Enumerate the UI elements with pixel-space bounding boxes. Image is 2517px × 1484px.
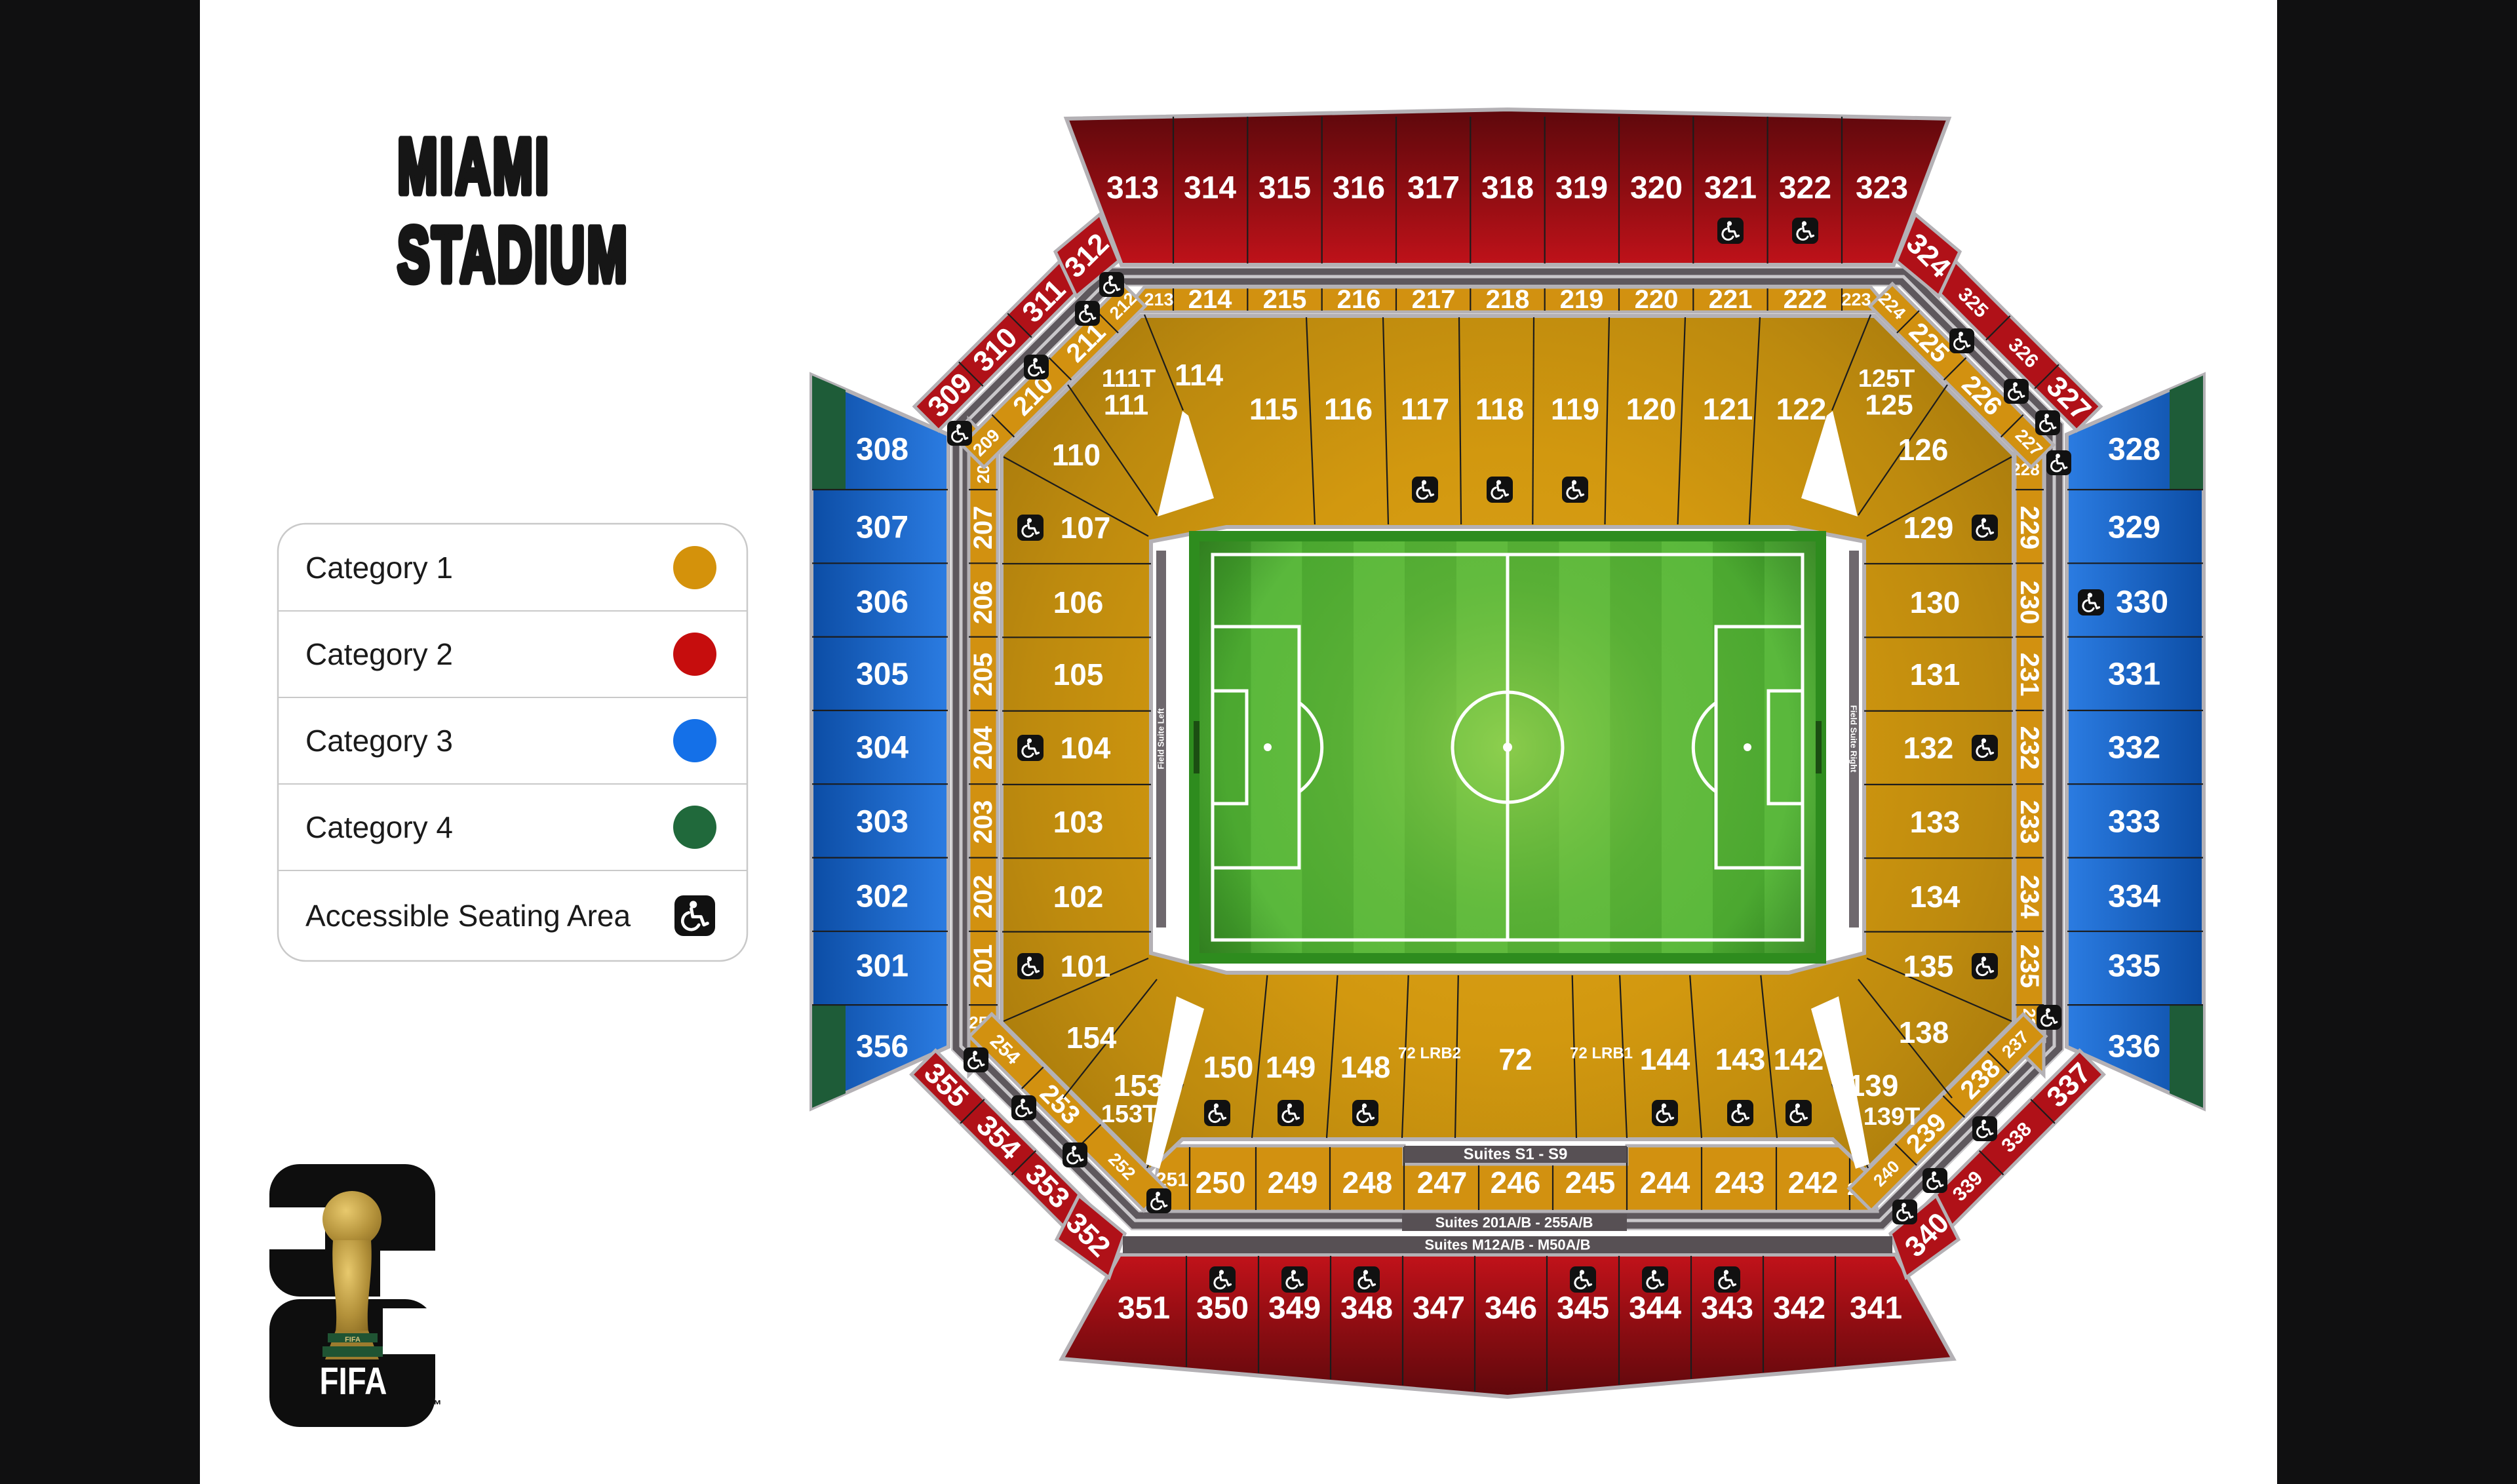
svg-text:118: 118 <box>1475 392 1524 426</box>
svg-text:202: 202 <box>969 875 998 919</box>
svg-text:322: 322 <box>1779 171 1831 206</box>
svg-text:232: 232 <box>2015 726 2044 770</box>
svg-text:323: 323 <box>1856 171 1908 206</box>
svg-text:201: 201 <box>969 945 998 988</box>
svg-text:Category 2: Category 2 <box>305 637 453 671</box>
svg-text:131: 131 <box>1910 657 1961 692</box>
svg-text:331: 331 <box>2108 657 2160 692</box>
svg-text:335: 335 <box>2108 949 2160 984</box>
svg-text:121: 121 <box>1703 392 1753 426</box>
svg-text:129: 129 <box>1903 511 1954 545</box>
svg-text:101: 101 <box>1061 949 1111 983</box>
svg-text:315: 315 <box>1258 171 1311 206</box>
svg-text:320: 320 <box>1630 171 1683 206</box>
svg-text:230: 230 <box>2015 581 2044 625</box>
svg-text:103: 103 <box>1053 805 1104 839</box>
svg-text:301: 301 <box>856 949 908 984</box>
svg-text:133: 133 <box>1910 805 1961 839</box>
svg-text:™: ™ <box>429 1398 442 1413</box>
svg-text:110: 110 <box>1052 438 1101 472</box>
svg-text:332: 332 <box>2108 731 2160 766</box>
svg-text:130: 130 <box>1910 585 1961 619</box>
svg-text:244: 244 <box>1640 1165 1690 1200</box>
svg-text:142: 142 <box>1774 1042 1824 1076</box>
svg-text:349: 349 <box>1268 1291 1321 1326</box>
svg-text:138: 138 <box>1899 1015 1949 1049</box>
svg-text:328: 328 <box>2108 433 2160 467</box>
svg-text:154: 154 <box>1066 1021 1117 1055</box>
svg-text:Suites 201A/B - 255A/B: Suites 201A/B - 255A/B <box>1435 1215 1593 1231</box>
svg-text:347: 347 <box>1413 1291 1465 1326</box>
svg-text:FIFA: FIFA <box>320 1361 387 1403</box>
svg-text:245: 245 <box>1565 1165 1616 1200</box>
svg-text:302: 302 <box>856 880 908 914</box>
svg-text:316: 316 <box>1333 171 1385 206</box>
svg-text:304: 304 <box>856 731 908 766</box>
svg-text:106: 106 <box>1053 585 1104 619</box>
svg-text:207: 207 <box>969 506 998 550</box>
svg-text:333: 333 <box>2108 805 2160 840</box>
svg-text:303: 303 <box>856 805 908 840</box>
svg-text:107: 107 <box>1061 511 1111 545</box>
svg-text:134: 134 <box>1910 880 1961 914</box>
svg-text:329: 329 <box>2108 511 2160 545</box>
svg-text:125: 125 <box>1865 389 1913 421</box>
svg-text:313: 313 <box>1106 171 1159 206</box>
svg-text:305: 305 <box>856 657 908 692</box>
svg-text:120: 120 <box>1626 392 1677 426</box>
svg-text:122: 122 <box>1776 392 1827 426</box>
svg-text:102: 102 <box>1053 880 1104 914</box>
svg-text:246: 246 <box>1491 1165 1541 1200</box>
svg-text:Category 3: Category 3 <box>305 724 453 758</box>
svg-text:250: 250 <box>1196 1165 1246 1200</box>
svg-text:220: 220 <box>1635 285 1679 314</box>
svg-text:Accessible Seating Area: Accessible Seating Area <box>305 899 631 933</box>
svg-text:150: 150 <box>1203 1050 1254 1084</box>
svg-text:319: 319 <box>1555 171 1608 206</box>
svg-text:330: 330 <box>2116 585 2168 620</box>
svg-text:Field Suite Right: Field Suite Right <box>1849 705 1859 773</box>
svg-text:148: 148 <box>1340 1050 1391 1084</box>
svg-text:314: 314 <box>1184 171 1236 206</box>
svg-text:351: 351 <box>1118 1291 1170 1326</box>
svg-text:143: 143 <box>1715 1042 1766 1076</box>
svg-text:231: 231 <box>2015 653 2044 697</box>
svg-text:Suites M12A/B - M50A/B: Suites M12A/B - M50A/B <box>1424 1237 1590 1253</box>
svg-text:214: 214 <box>1188 285 1232 314</box>
svg-text:Category 1: Category 1 <box>305 551 453 585</box>
svg-text:346: 346 <box>1485 1291 1537 1326</box>
svg-text:356: 356 <box>856 1030 908 1064</box>
svg-text:233: 233 <box>2015 800 2044 844</box>
svg-text:307: 307 <box>856 511 908 545</box>
svg-text:222: 222 <box>1784 285 1827 314</box>
svg-text:213: 213 <box>1144 290 1173 309</box>
svg-text:235: 235 <box>2015 945 2044 988</box>
svg-text:153T: 153T <box>1101 1101 1158 1128</box>
svg-text:119: 119 <box>1551 392 1599 426</box>
svg-text:308: 308 <box>856 433 908 467</box>
svg-text:242: 242 <box>1788 1165 1839 1200</box>
svg-text:135: 135 <box>1903 949 1954 983</box>
svg-text:72: 72 <box>1498 1042 1532 1076</box>
svg-text:Category 4: Category 4 <box>305 810 453 844</box>
svg-text:243: 243 <box>1715 1165 1765 1200</box>
svg-text:126: 126 <box>1898 433 1949 467</box>
svg-text:117: 117 <box>1401 392 1449 426</box>
svg-text:219: 219 <box>1560 285 1604 314</box>
svg-text:218: 218 <box>1486 285 1530 314</box>
svg-text:153: 153 <box>1114 1068 1164 1103</box>
svg-text:Suites S1 - S9: Suites S1 - S9 <box>1464 1146 1568 1163</box>
svg-text:132: 132 <box>1903 731 1954 765</box>
svg-text:342: 342 <box>1773 1291 1825 1326</box>
svg-text:223: 223 <box>1841 290 1871 309</box>
svg-text:216: 216 <box>1337 285 1381 314</box>
svg-text:FIFA: FIFA <box>345 1336 361 1344</box>
svg-text:205: 205 <box>969 653 998 697</box>
svg-text:221: 221 <box>1709 285 1753 314</box>
svg-text:139: 139 <box>1848 1068 1899 1103</box>
svg-text:204: 204 <box>969 726 998 770</box>
svg-text:345: 345 <box>1557 1291 1609 1326</box>
svg-text:Field Suite Left: Field Suite Left <box>1156 708 1166 770</box>
svg-text:229: 229 <box>2015 506 2044 550</box>
svg-text:116: 116 <box>1324 392 1373 426</box>
svg-text:203: 203 <box>969 800 998 844</box>
svg-text:248: 248 <box>1342 1165 1393 1200</box>
svg-text:144: 144 <box>1640 1042 1690 1076</box>
svg-text:249: 249 <box>1268 1165 1318 1200</box>
svg-text:318: 318 <box>1481 171 1534 206</box>
svg-text:72 LRB1: 72 LRB1 <box>1570 1045 1633 1063</box>
svg-text:149: 149 <box>1266 1050 1316 1084</box>
svg-text:114: 114 <box>1175 358 1224 392</box>
svg-text:104: 104 <box>1061 731 1111 765</box>
svg-text:234: 234 <box>2015 875 2044 919</box>
svg-text:341: 341 <box>1850 1291 1902 1326</box>
svg-text:334: 334 <box>2108 880 2160 914</box>
svg-text:350: 350 <box>1196 1291 1249 1326</box>
svg-text:206: 206 <box>969 581 998 625</box>
svg-text:321: 321 <box>1704 171 1757 206</box>
svg-text:217: 217 <box>1412 285 1456 314</box>
svg-text:343: 343 <box>1701 1291 1753 1326</box>
svg-text:306: 306 <box>856 585 908 620</box>
svg-text:344: 344 <box>1629 1291 1681 1326</box>
svg-text:105: 105 <box>1053 657 1104 692</box>
svg-text:115: 115 <box>1249 392 1298 426</box>
svg-text:336: 336 <box>2108 1030 2160 1064</box>
svg-text:348: 348 <box>1340 1291 1393 1326</box>
svg-text:139T: 139T <box>1863 1103 1921 1131</box>
svg-text:317: 317 <box>1407 171 1460 206</box>
svg-text:111: 111 <box>1104 389 1149 421</box>
svg-text:247: 247 <box>1417 1165 1468 1200</box>
svg-text:215: 215 <box>1263 285 1307 314</box>
svg-text:72 LRB2: 72 LRB2 <box>1398 1045 1461 1063</box>
